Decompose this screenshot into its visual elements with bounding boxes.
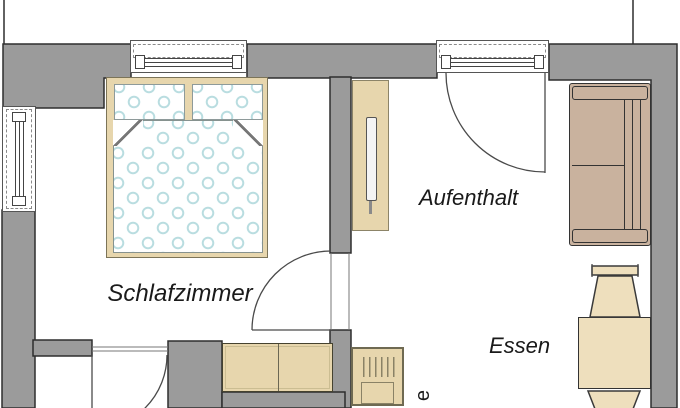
roller-blind-dashed	[133, 44, 244, 58]
wall-under-cabinet	[222, 392, 345, 408]
television	[366, 117, 377, 201]
lounge-balcony-window	[436, 40, 549, 73]
sofa-backrest-line	[640, 99, 641, 230]
window-frame-cap	[135, 55, 145, 69]
window-frame-cap	[441, 55, 451, 69]
bedroom-window	[130, 40, 247, 73]
window-frame-cap	[232, 55, 242, 69]
window-glass	[15, 119, 24, 199]
sofa-seat-divider	[572, 165, 624, 166]
wall-left-lower	[2, 210, 35, 408]
sofa-backrest-line	[632, 99, 633, 230]
room-label-vertical-partial: e	[412, 390, 435, 401]
sofa	[569, 83, 651, 246]
wall-block-south	[168, 341, 222, 408]
duvet	[113, 120, 263, 253]
window-frame-cap	[12, 196, 26, 206]
window-glass	[449, 58, 536, 67]
wall-bedroom-east-upper	[330, 77, 351, 253]
wall-bedroom-south	[33, 340, 92, 356]
room-label-bedroom: Schlafzimmer	[100, 280, 260, 308]
sofa-armrest	[572, 86, 648, 100]
duvet-fold	[233, 120, 263, 146]
bedroom-side-window	[2, 106, 36, 212]
stove-drawer	[361, 382, 394, 404]
room-label-dining: Essen	[489, 333, 550, 359]
pillow	[114, 84, 185, 120]
dining-table	[578, 317, 651, 389]
window-frame-cap	[534, 55, 544, 69]
window-glass	[143, 58, 234, 67]
window-frame-cap	[12, 112, 26, 122]
roller-blind-dashed	[439, 44, 546, 58]
pillow	[192, 84, 263, 120]
duvet-fold	[113, 120, 143, 146]
built-in-cabinet	[222, 343, 333, 392]
sofa-armrest	[572, 229, 648, 243]
stove-unit	[351, 347, 404, 406]
double-bed	[106, 77, 268, 258]
stove-vents	[363, 357, 396, 377]
sofa-backrest-line	[624, 99, 625, 230]
wall-top-middle	[247, 44, 437, 78]
room-label-lounge: Aufenthalt	[419, 185, 518, 211]
floor-plan: Schlafzimmer Aufenthalt Essen e	[0, 0, 680, 408]
tv-sideboard	[352, 80, 389, 231]
